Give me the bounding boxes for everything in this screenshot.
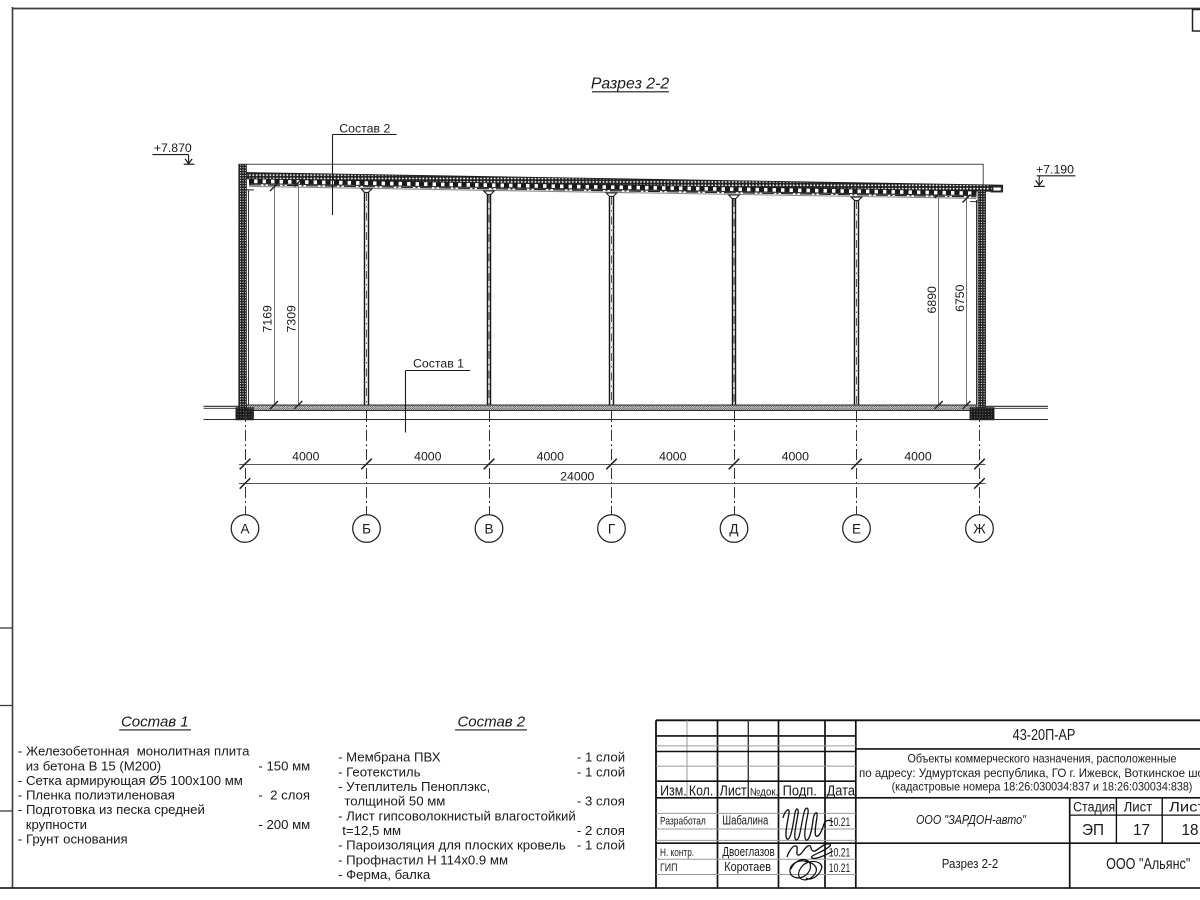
svg-text:4000: 4000 xyxy=(414,449,442,463)
svg-text:- 1 слой: - 1 слой xyxy=(577,764,625,779)
svg-text:Состав 2: Состав 2 xyxy=(339,122,390,136)
svg-text:10.21: 10.21 xyxy=(829,846,851,860)
svg-text:Состав 2: Состав 2 xyxy=(457,714,525,731)
svg-text:10.21: 10.21 xyxy=(829,861,851,875)
svg-text:18: 18 xyxy=(1181,822,1198,839)
svg-text:- Лист гипсоволокнистый влагос: - Лист гипсоволокнистый влагостойкий xyxy=(338,808,576,823)
svg-text:6890: 6890 xyxy=(925,286,939,314)
svg-text:Двоеглазов: Двоеглазов xyxy=(722,845,774,859)
svg-text:Подп.: Подп. xyxy=(783,783,817,799)
svg-text:(кадастровые номера 18:26:0300: (кадастровые номера 18:26:030034:837 и 1… xyxy=(892,780,1193,794)
svg-text:Г: Г xyxy=(608,521,616,536)
svg-text:t=12,5 мм: t=12,5 мм xyxy=(342,823,401,838)
svg-text:4000: 4000 xyxy=(782,449,810,463)
svg-text:ООО "ЗАРДОН-авто": ООО "ЗАРДОН-авто" xyxy=(916,812,1027,827)
svg-text:Лист: Лист xyxy=(720,783,747,799)
svg-text:- Сетка армирующая Ø5 100х100: - Сетка армирующая Ø5 100х100 мм xyxy=(18,773,243,788)
svg-text:+7.190: +7.190 xyxy=(1036,162,1074,176)
svg-text:Лист: Лист xyxy=(1124,799,1153,814)
svg-text:43-20П-АР: 43-20П-АР xyxy=(1013,727,1076,744)
svg-text:- 200 мм: - 200 мм xyxy=(258,817,310,832)
svg-text:4000: 4000 xyxy=(904,449,932,463)
svg-text:Н. контр.: Н. контр. xyxy=(660,847,694,859)
svg-text:- Пароизоляция для плоских кро: - Пароизоляция для плоских кровель xyxy=(338,838,566,853)
svg-text:4000: 4000 xyxy=(659,449,687,463)
svg-text:В: В xyxy=(484,521,493,536)
svg-text:7169: 7169 xyxy=(260,305,274,333)
svg-text:Стадия: Стадия xyxy=(1073,799,1115,814)
svg-text:6750: 6750 xyxy=(953,284,967,312)
svg-text:- Геотекстиль: - Геотекстиль xyxy=(338,764,421,779)
svg-text:№док.: №док. xyxy=(750,786,778,798)
svg-text:ООО "Альянс": ООО "Альянс" xyxy=(1106,856,1190,873)
svg-text:- Ферма, балка: - Ферма, балка xyxy=(338,867,431,882)
svg-text:Коротаев: Коротаев xyxy=(724,860,771,874)
svg-text:по адресу: Удмуртская республи: по адресу: Удмуртская республика, ГО г. … xyxy=(859,766,1200,780)
svg-text:- 2 слоя: - 2 слоя xyxy=(577,823,625,838)
svg-text:- 3 слоя: - 3 слоя xyxy=(577,794,625,809)
svg-text:4000: 4000 xyxy=(537,449,565,463)
svg-text:ЭП: ЭП xyxy=(1082,822,1104,839)
svg-text:Д: Д xyxy=(729,521,738,536)
svg-text:- Подготовка из песка средней: - Подготовка из песка средней xyxy=(18,802,205,817)
svg-text:- Утеплитель Пеноплэкс,: - Утеплитель Пеноплэкс, xyxy=(338,779,490,794)
svg-text:- Железобетонная монолитная п: - Железобетонная монолитная плита xyxy=(18,744,250,759)
svg-text:- Профнастил Н 114х0.9 мм: - Профнастил Н 114х0.9 мм xyxy=(338,852,508,867)
svg-text:24000: 24000 xyxy=(560,469,594,483)
svg-text:Разрез 2-2: Разрез 2-2 xyxy=(942,856,999,871)
svg-text:+7.870: +7.870 xyxy=(154,141,192,155)
svg-text:- 2 слоя: - 2 слоя xyxy=(258,788,310,803)
svg-text:- 1 слой: - 1 слой xyxy=(577,838,625,853)
svg-text:- Грунт основания: - Грунт основания xyxy=(18,832,128,847)
svg-text:7309: 7309 xyxy=(285,305,299,333)
svg-text:из бетона В 15 (М200): из бетона В 15 (М200) xyxy=(26,758,161,773)
svg-text:- 1 слой: - 1 слой xyxy=(577,750,625,765)
svg-text:Кол.: Кол. xyxy=(689,783,713,799)
svg-text:Разрез 2-2: Разрез 2-2 xyxy=(591,76,669,93)
svg-text:Объекты коммерческого назначен: Объекты коммерческого назначения, распол… xyxy=(908,752,1177,766)
svg-text:- 150 мм: - 150 мм xyxy=(258,758,310,773)
svg-text:17: 17 xyxy=(1133,822,1150,839)
svg-text:толщиной 50 мм: толщиной 50 мм xyxy=(344,794,445,809)
svg-text:Шабалина: Шабалина xyxy=(722,814,769,828)
svg-text:- Пленка полиэтиленовая: - Пленка полиэтиленовая xyxy=(18,788,175,803)
svg-text:Разработал: Разработал xyxy=(660,816,706,828)
svg-text:Состав 1: Состав 1 xyxy=(121,714,189,731)
svg-text:Е: Е xyxy=(852,521,861,536)
svg-text:Состав 1: Состав 1 xyxy=(413,357,464,371)
svg-text:Листов: Листов xyxy=(1169,799,1200,814)
svg-text:Б: Б xyxy=(362,521,371,536)
svg-text:Ж: Ж xyxy=(973,521,986,536)
svg-text:- Мембрана ПВХ: - Мембрана ПВХ xyxy=(338,750,441,765)
svg-text:крупности: крупности xyxy=(26,817,87,832)
svg-text:Дата: Дата xyxy=(827,783,856,799)
svg-text:4000: 4000 xyxy=(292,449,320,463)
svg-text:Изм.: Изм. xyxy=(660,783,687,799)
svg-text:ГИП: ГИП xyxy=(660,862,677,874)
svg-text:А: А xyxy=(240,521,249,536)
